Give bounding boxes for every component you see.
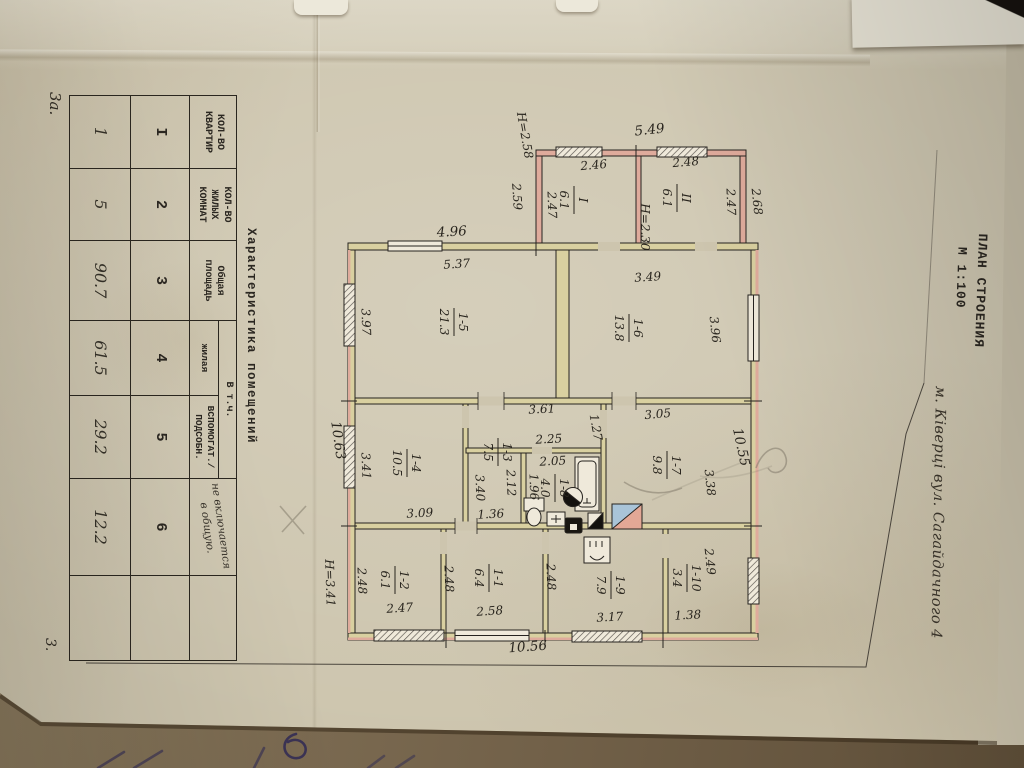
torn-paper-piece xyxy=(556,0,598,12)
door-openings xyxy=(440,242,717,558)
window-icon xyxy=(344,426,355,488)
address-note: м. Ківерці вул. Сагайдачного 4 xyxy=(926,386,948,720)
dimension-label: 2.48 xyxy=(671,154,700,170)
page-number: 3. xyxy=(42,638,58,651)
room-number: 1-5 xyxy=(456,312,470,331)
characteristics-table: КОЛ-ВО КВАРТИР КОЛ-ВО ЖИЛЫХ КОМНАТ Общая… xyxy=(69,95,237,661)
plan-title-block: ПЛАН СТРОЕНИЯ М 1:100 xyxy=(946,233,992,394)
dimension-label: 2.12 xyxy=(504,468,519,496)
value-living-area: 61.5 xyxy=(70,321,131,396)
room-area: 3.4 xyxy=(670,568,684,587)
dimension-label: 3.09 xyxy=(406,505,434,520)
room-area: 6.4 xyxy=(472,568,486,587)
room-label: 1-79.8 xyxy=(650,451,683,479)
room-area: 10.5 xyxy=(390,450,404,477)
dimension-label: Н=2.58 xyxy=(514,110,536,160)
overlapping-document xyxy=(851,0,1024,48)
room-area: 21.3 xyxy=(437,308,451,336)
column-number: 6 xyxy=(131,479,190,576)
pencil-scribbles xyxy=(280,448,786,534)
dimension-label: 2.47 xyxy=(385,600,414,616)
window-icon xyxy=(556,147,602,157)
window-icon xyxy=(748,295,759,361)
document-page: ПЛАН СТРОЕНИЯ М 1:100 м. Ківерці вул. Са… xyxy=(0,0,1024,768)
header-empty-cell xyxy=(190,576,237,661)
window-icon xyxy=(748,558,759,604)
door-ticks xyxy=(455,392,636,534)
room-label: 1-103.4 xyxy=(670,564,703,592)
dimension-label: 2.48 xyxy=(355,566,370,595)
dimension-label: 5.37 xyxy=(443,256,471,272)
window-icon xyxy=(344,284,355,346)
value-apartments: 1 xyxy=(70,96,131,169)
windows xyxy=(344,147,759,642)
value-total-area: 90.7 xyxy=(70,241,131,321)
black-photo-corner xyxy=(957,0,1024,26)
dimension-label: 2.68 xyxy=(749,187,766,216)
room-number: 1-10 xyxy=(689,565,703,592)
vertical-crease xyxy=(316,0,320,132)
dimension-label: 3.17 xyxy=(596,609,624,624)
dimension-label: Н=3.41 xyxy=(322,558,338,607)
dimension-label: 10.56 xyxy=(508,638,548,657)
dimension-label: 2.47 xyxy=(545,190,560,219)
room-number: I xyxy=(576,197,590,203)
dimension-label: 10.55 xyxy=(729,427,753,468)
handwritten-note: не включается в общую. xyxy=(194,480,234,575)
dimension-label: 3.49 xyxy=(634,269,662,285)
dimension-label: 1.27 xyxy=(587,413,605,442)
room-label: 1-521.3 xyxy=(437,308,470,336)
wall-stove-icon xyxy=(565,518,582,533)
room-label: 1-26.1 xyxy=(378,566,411,594)
washbasin-icon xyxy=(547,512,565,526)
window-icon xyxy=(388,241,442,251)
room-number: II xyxy=(679,192,693,203)
sheet-note: 3а. xyxy=(46,92,64,115)
room-area: 13.8 xyxy=(612,315,626,342)
dimension-label: 10.63 xyxy=(327,420,348,461)
dimension-label: 3.41 xyxy=(359,452,374,479)
bathtub-icon xyxy=(575,457,599,511)
table-title: Характеристика помещений xyxy=(244,228,258,660)
window-icon xyxy=(657,147,707,157)
toilet-icon xyxy=(524,498,544,526)
room-area: 9.8 xyxy=(650,455,664,474)
dimension-label: 3.96 xyxy=(707,316,724,344)
paper-stain xyxy=(640,560,880,700)
dimension-label: 2.05 xyxy=(538,453,566,468)
header-total-area: Общая площадь xyxy=(190,241,237,321)
dimension-label: 2.25 xyxy=(534,431,562,446)
dimension-label: 2.58 xyxy=(475,603,504,619)
boiler-icon xyxy=(584,537,610,563)
characteristics-block: Характеристика помещений КОЛ-ВО КВАРТИР … xyxy=(69,95,270,660)
column-number: 4 xyxy=(131,321,190,396)
column-number: I xyxy=(131,96,190,169)
room-number: 1-1 xyxy=(491,568,505,587)
small-flue-icon xyxy=(588,513,603,529)
room-label: 1-97.9 xyxy=(594,571,627,599)
dimension-label: 3.97 xyxy=(359,308,374,336)
header-including: В т.ч. xyxy=(219,321,237,479)
dimension-label: 2.59 xyxy=(509,182,525,211)
room-number: 1-6 xyxy=(631,318,645,338)
room-number: 1-7 xyxy=(669,455,683,475)
header-note-cell: не включается в общую. xyxy=(190,479,237,576)
dimension-label: 2.48 xyxy=(544,562,559,591)
floor-plan-labels: 5.492.462.48Н=2.582.592.47Н=2.302.472.68… xyxy=(322,110,765,656)
room-area: 7.5 xyxy=(481,442,495,461)
room-label: 1-16.4 xyxy=(472,564,505,592)
dimension-label: 4.96 xyxy=(435,223,467,241)
torn-paper-piece xyxy=(294,0,348,15)
room-area: 6.1 xyxy=(557,190,571,209)
sink-icon xyxy=(563,488,582,507)
room-number: 1-8 xyxy=(557,478,571,498)
column-number: 3 xyxy=(131,241,190,321)
dimension-label: 1.38 xyxy=(674,607,702,622)
room-area: 6.1 xyxy=(378,570,392,589)
dimension-label: 2.47 xyxy=(724,187,739,216)
dimension-label: 1.96 xyxy=(527,473,542,501)
value-auxiliary-area: 29.2 xyxy=(70,396,131,479)
value-living-rooms: 5 xyxy=(70,169,131,241)
header-living-rooms: КОЛ-ВО ЖИЛЫХ КОМНАТ xyxy=(190,169,237,241)
dimension-label: 3.38 xyxy=(702,469,719,497)
dimension-label: 2.48 xyxy=(442,564,457,593)
header-auxiliary-area: ВСПОМОГАТ./ ПОДСОБН. xyxy=(190,396,219,479)
window-icon xyxy=(374,630,444,641)
room-number: 1-9 xyxy=(613,575,627,595)
column-number-empty xyxy=(131,576,190,661)
vertical-crease-faint xyxy=(312,0,317,740)
dimension-label: 5.49 xyxy=(634,120,666,139)
dimension-label: 3.05 xyxy=(644,406,672,422)
room-label: II6.1 xyxy=(660,184,693,212)
dimension-label: 1.36 xyxy=(477,506,505,521)
room-area: 7.9 xyxy=(594,575,608,594)
dimension-label: 2.46 xyxy=(579,157,608,173)
desk-ink-marks xyxy=(98,734,414,768)
fold-crease xyxy=(0,49,870,66)
dimension-label: 3.40 xyxy=(473,474,488,502)
header-apartments: КОЛ-ВО КВАРТИР xyxy=(190,96,237,169)
dimension-label: 3.61 xyxy=(528,401,555,416)
dimension-label: Н=2.30 xyxy=(638,202,652,251)
room-area: 4.0 xyxy=(538,477,552,497)
room-number: 1-2 xyxy=(397,570,411,589)
room-label: 1-84.0 xyxy=(538,474,571,502)
room-label: 1-37.5 xyxy=(481,438,514,466)
header-living-area: жилая xyxy=(190,321,219,396)
room-area: 6.1 xyxy=(660,188,674,207)
value-empty xyxy=(70,576,131,661)
window-icon xyxy=(455,630,529,641)
stove-icon xyxy=(612,504,642,529)
value-not-included: 12.2 xyxy=(70,479,131,576)
dimension-ticks xyxy=(341,145,762,648)
room-number: 1-3 xyxy=(500,442,514,462)
dimension-label: 2.49 xyxy=(702,547,719,576)
column-number: 5 xyxy=(131,396,190,479)
fixtures xyxy=(524,457,642,563)
room-label: 1-613.8 xyxy=(612,314,645,342)
room-label: 1-410.5 xyxy=(390,449,423,477)
photographed-document: ПЛАН СТРОЕНИЯ М 1:100 м. Ківерці вул. Са… xyxy=(0,0,1024,768)
window-icon xyxy=(572,631,642,642)
room-number: 1-4 xyxy=(409,453,423,472)
walls xyxy=(348,150,759,640)
room-label: I6.1 xyxy=(557,186,590,214)
column-number: 2 xyxy=(131,169,190,241)
